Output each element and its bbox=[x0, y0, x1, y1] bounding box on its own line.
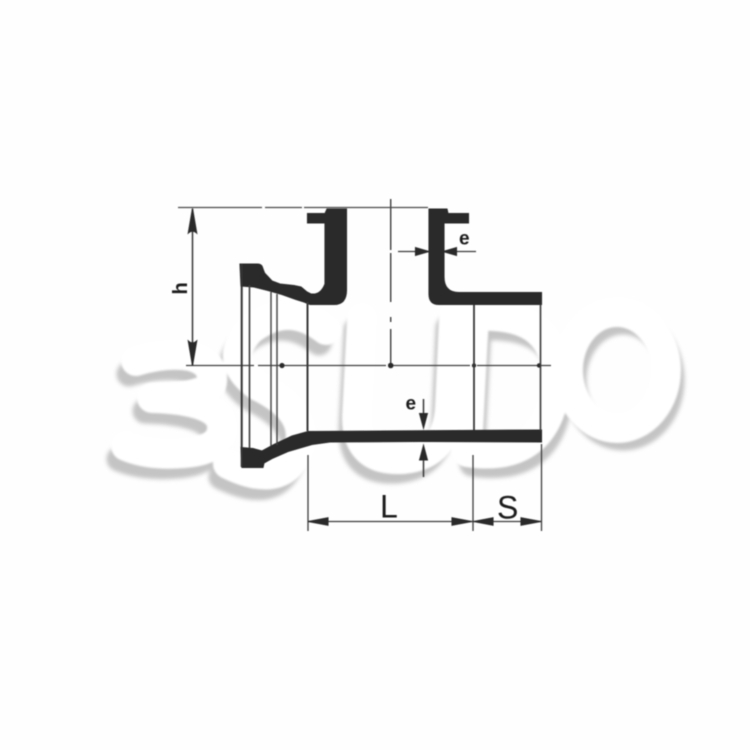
svg-text:S: S bbox=[497, 490, 518, 526]
svg-text:e: e bbox=[406, 394, 417, 415]
svg-text:h: h bbox=[170, 282, 192, 294]
svg-text:e: e bbox=[459, 229, 470, 250]
svg-text:L: L bbox=[380, 489, 398, 525]
